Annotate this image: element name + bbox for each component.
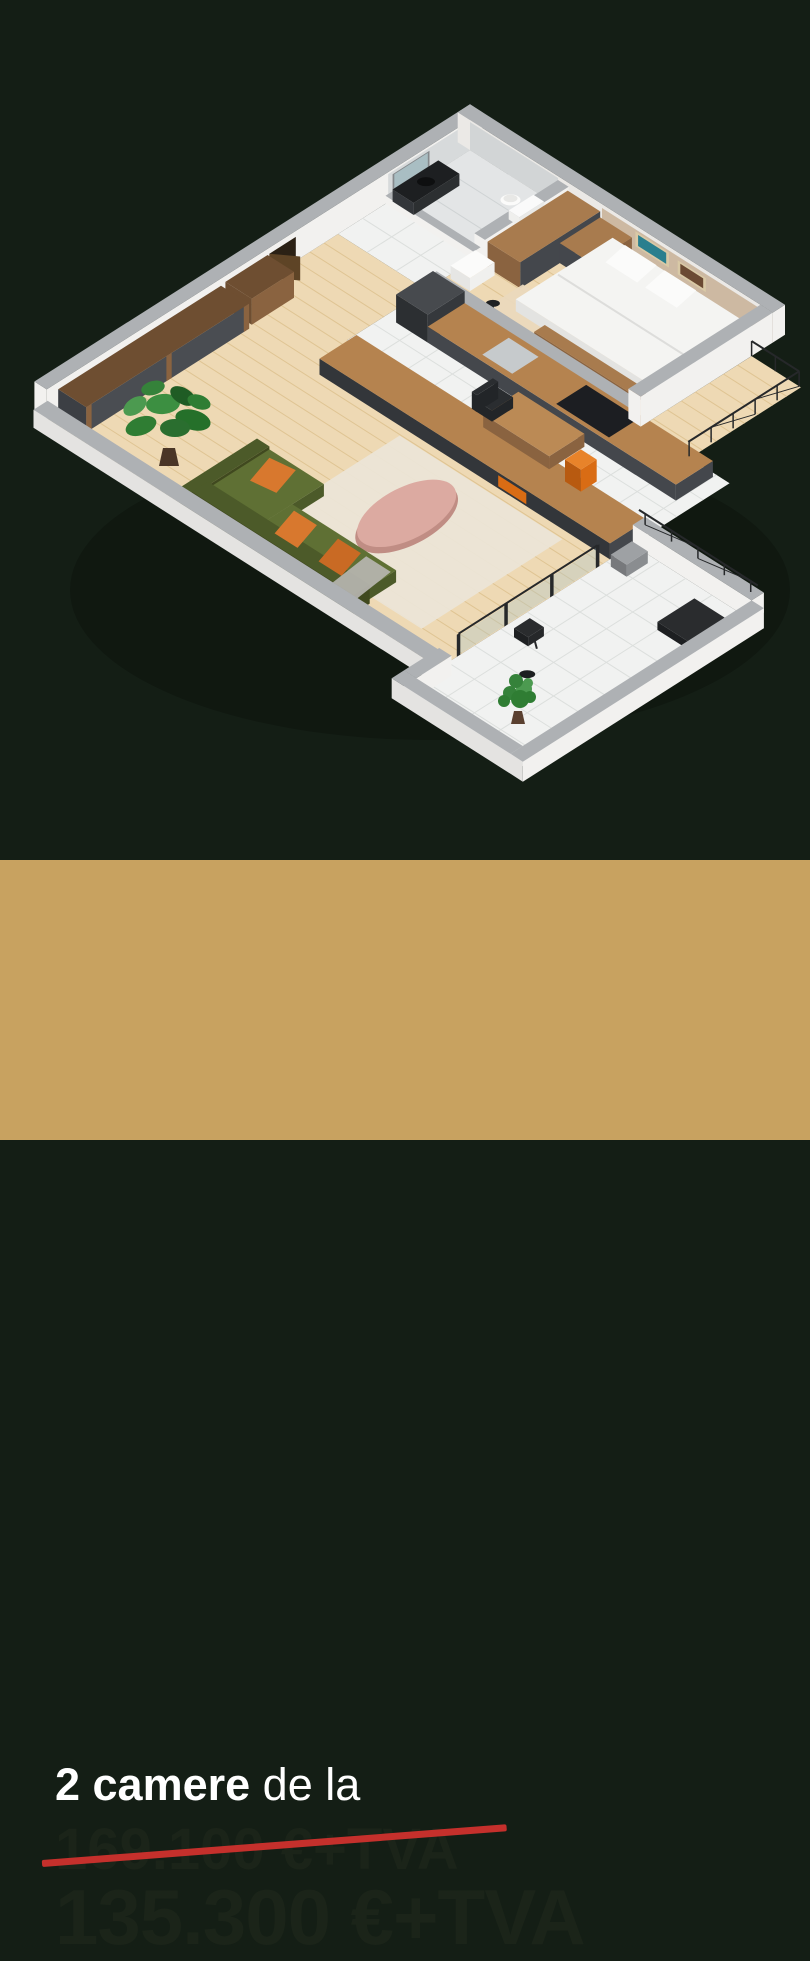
toilet-seat bbox=[503, 195, 517, 203]
price-band: 2 camere de la 169.100 €+TVA 135.300 €+T… bbox=[0, 860, 810, 1140]
listing-title: 2 camere de la bbox=[55, 1759, 360, 1811]
glass-door-post bbox=[504, 602, 508, 626]
glass-door-post bbox=[550, 573, 554, 597]
floor-plan-illustration bbox=[0, 0, 810, 860]
bathroom-basin bbox=[417, 177, 435, 186]
terrace-plant bbox=[511, 690, 529, 708]
glass-door-post bbox=[457, 633, 461, 657]
new-price: 135.300 €+TVA bbox=[55, 1877, 585, 1959]
wardrobe-frame bbox=[166, 353, 171, 381]
living-plant bbox=[160, 419, 190, 437]
glass-door-post bbox=[596, 544, 600, 568]
apartment-listing-card[interactable]: 2 camere de la 169.100 €+TVA 135.300 €+T… bbox=[0, 0, 810, 1140]
floor-plan-3d-render bbox=[0, 0, 810, 860]
terrace-plant bbox=[509, 674, 523, 688]
listing-title-rooms: 2 camere bbox=[55, 1759, 250, 1810]
terrace-plant bbox=[523, 678, 533, 688]
listing-title-fromlabel: de la bbox=[250, 1759, 360, 1810]
wardrobe-frame bbox=[244, 304, 249, 332]
dining-chair bbox=[472, 392, 477, 412]
terrace-plant bbox=[498, 695, 510, 707]
